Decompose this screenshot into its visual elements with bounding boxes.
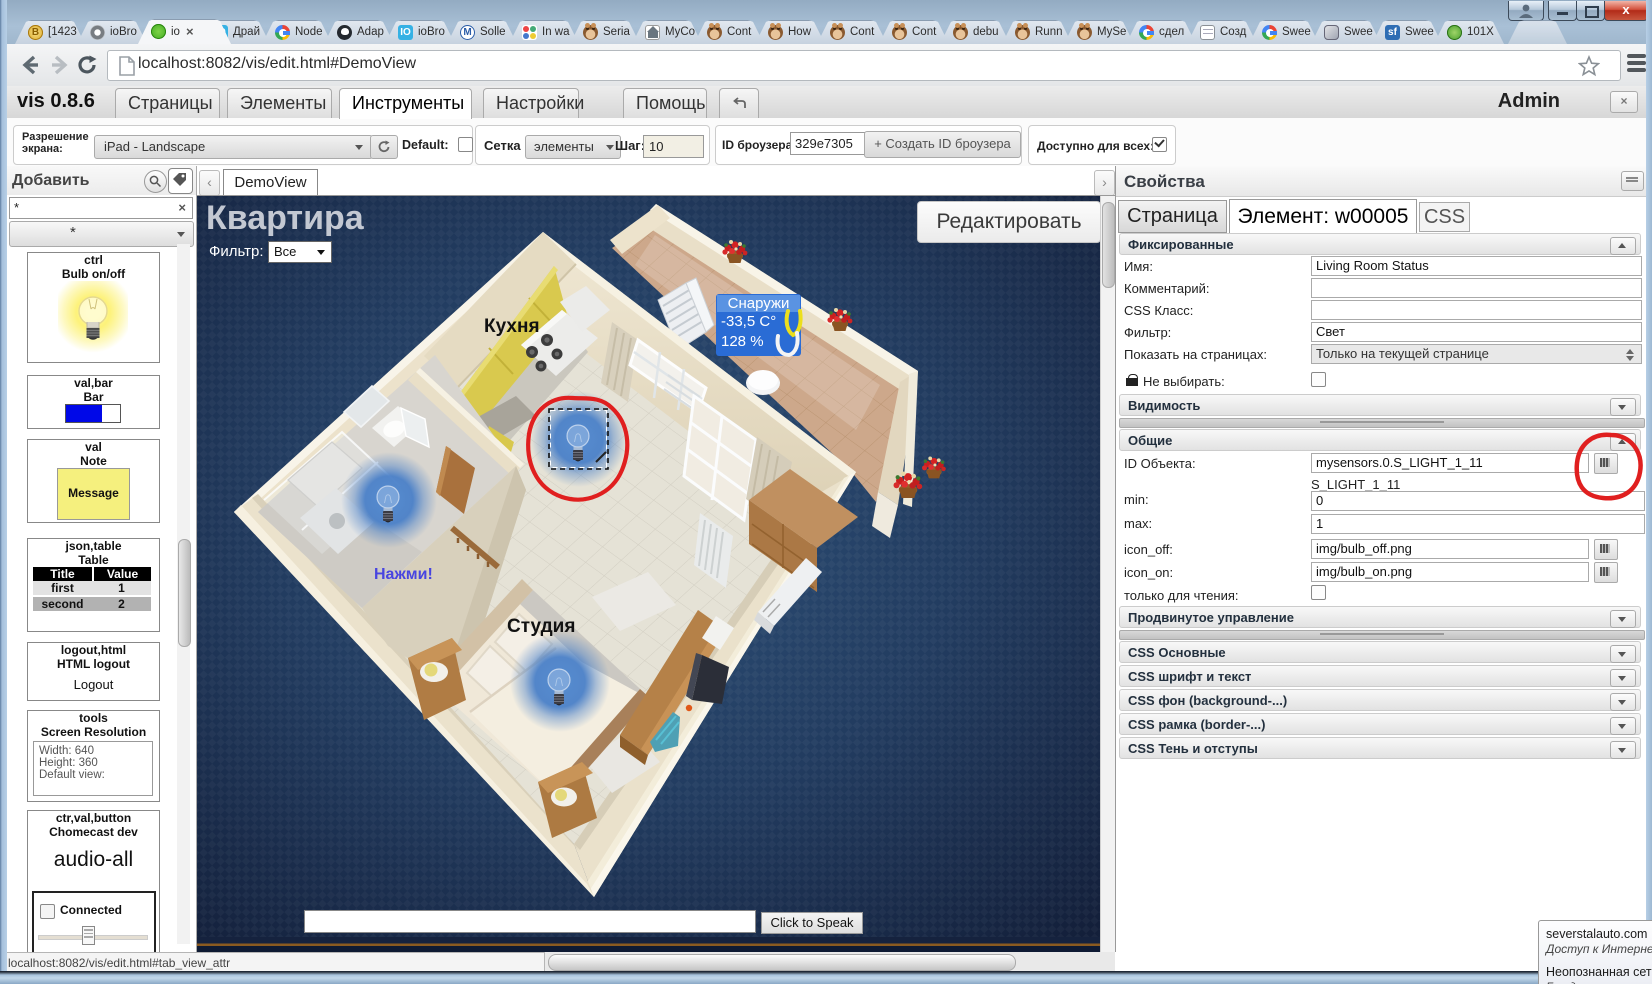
svg-text:Студия: Студия: [507, 616, 575, 637]
svg-text:Нажми!: Нажми!: [374, 566, 433, 583]
svg-text:Кухня: Кухня: [484, 316, 540, 337]
